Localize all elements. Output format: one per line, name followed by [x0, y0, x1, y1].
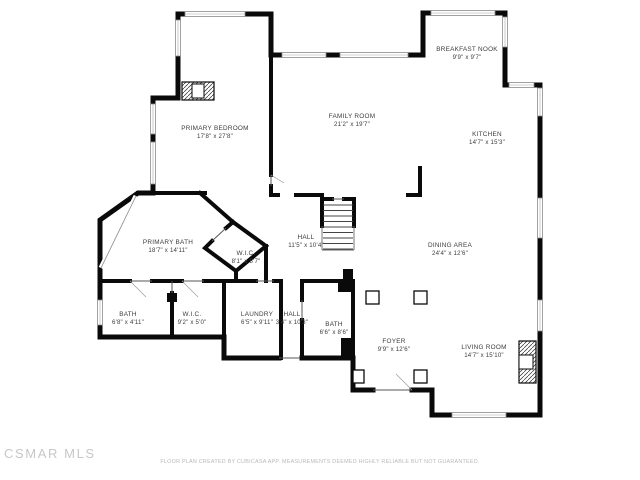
room-name: HALL [288, 233, 324, 242]
room-label: BREAKFAST NOOK 9'9" x 9'7" [436, 45, 498, 63]
room-label: PRIMARY BATH 18'7" x 14'11" [143, 238, 193, 256]
disclaimer-text: FLOOR PLAN CREATED BY CUBICASA APP. MEAS… [160, 459, 479, 465]
room-dimensions: 8'1" x 8'7" [232, 258, 261, 267]
room-label: BATH 6'8" x 4'11" [112, 310, 144, 328]
room-name: LIVING ROOM [461, 343, 506, 352]
room-name: PRIMARY BEDROOM [181, 124, 248, 133]
room-dimensions: 17'8" x 27'8" [181, 133, 248, 142]
room-labels: BREAKFAST NOOK 9'9" x 9'7" FAMILY ROOM 2… [0, 0, 640, 480]
room-label: HALL 3'4" x 10'3" [276, 310, 308, 328]
room-dimensions: 11'5" x 10'4" [288, 242, 324, 251]
room-name: DINING AREA [428, 241, 472, 250]
room-name: PRIMARY BATH [143, 238, 193, 247]
room-dimensions: 9'9" x 9'7" [436, 54, 498, 63]
room-name: W.I.C. [232, 249, 261, 258]
room-label: BATH 6'6" x 8'6" [320, 320, 349, 338]
room-name: FOYER [378, 337, 410, 346]
room-name: KITCHEN [469, 130, 505, 139]
room-name: W.I.C. [178, 310, 207, 319]
room-dimensions: 24'4" x 12'6" [428, 250, 472, 259]
room-label: KITCHEN 14'7" x 15'3" [469, 130, 505, 148]
room-name: BREAKFAST NOOK [436, 45, 498, 54]
room-dimensions: 14'7" x 15'10" [461, 352, 506, 361]
room-dimensions: 3'4" x 10'3" [276, 319, 308, 328]
room-dimensions: 9'9" x 12'6" [378, 346, 410, 355]
room-label: FAMILY ROOM 21'2" x 19'7" [329, 112, 376, 130]
room-dimensions: 14'7" x 15'3" [469, 139, 505, 148]
room-name: HALL [276, 310, 308, 319]
room-label: LAUNDRY 6'5" x 9'11" [241, 310, 273, 328]
room-label: W.I.C. 9'2" x 5'0" [178, 310, 207, 328]
room-label: PRIMARY BEDROOM 17'8" x 27'8" [181, 124, 248, 142]
room-dimensions: 21'2" x 19'7" [329, 121, 376, 130]
room-dimensions: 18'7" x 14'11" [143, 247, 193, 256]
room-name: BATH [112, 310, 144, 319]
room-label: HALL 11'5" x 10'4" [288, 233, 324, 251]
room-label: FOYER 9'9" x 12'6" [378, 337, 410, 355]
room-dimensions: 6'8" x 4'11" [112, 319, 144, 328]
room-label: LIVING ROOM 14'7" x 15'10" [461, 343, 506, 361]
mls-watermark: CSMAR MLS [4, 446, 96, 461]
room-name: FAMILY ROOM [329, 112, 376, 121]
room-label: W.I.C. 8'1" x 8'7" [232, 249, 261, 267]
room-dimensions: 9'2" x 5'0" [178, 319, 207, 328]
floor-plan: BREAKFAST NOOK 9'9" x 9'7" FAMILY ROOM 2… [0, 0, 640, 480]
room-label: DINING AREA 24'4" x 12'6" [428, 241, 472, 259]
room-name: LAUNDRY [241, 310, 273, 319]
room-dimensions: 6'5" x 9'11" [241, 319, 273, 328]
room-dimensions: 6'6" x 8'6" [320, 329, 349, 338]
room-name: BATH [320, 320, 349, 329]
